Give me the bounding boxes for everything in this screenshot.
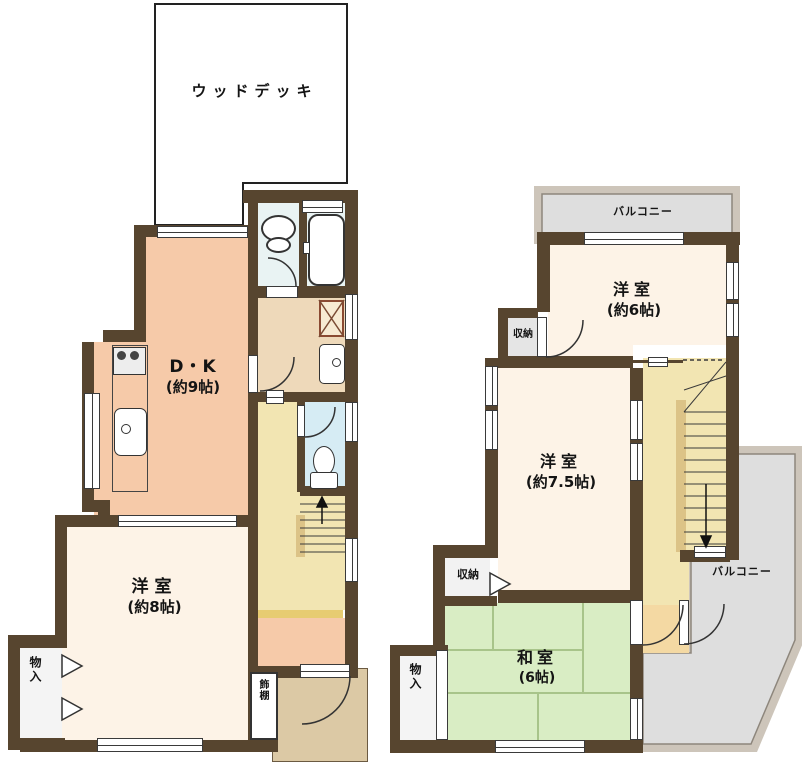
washitsu-door [630, 600, 643, 645]
wall [134, 225, 146, 332]
window [584, 232, 684, 245]
wall [537, 232, 550, 312]
wall [498, 590, 630, 603]
closet2f-label: 物入 [407, 663, 424, 691]
room-name: D・K [118, 356, 268, 378]
storage-lower-label: 収納 [444, 568, 492, 582]
vanity-faucet [332, 358, 341, 367]
tatami-line [537, 694, 539, 740]
window [630, 698, 643, 740]
bath-door [266, 286, 298, 298]
entrance-hall-floor [253, 618, 345, 668]
bedroom8-label: 洋室 (約8帖) [72, 576, 237, 618]
front-door [300, 664, 350, 678]
wall [390, 645, 400, 752]
bedroom6-label: 洋室 (約6帖) [558, 280, 710, 320]
room-size: (約9帖) [118, 378, 268, 398]
window [345, 538, 358, 582]
room-name: 和室 [466, 648, 608, 669]
stair-exit-window [694, 546, 726, 558]
room-size: (6帖) [466, 669, 608, 687]
tatami-line [492, 603, 494, 650]
wood-deck-label: ウッドデッキ [172, 82, 337, 102]
wall [8, 635, 20, 750]
closet2f-door [436, 650, 448, 740]
toilet-door [297, 405, 305, 437]
bedroom75-label: 洋室 (約7.5帖) [482, 452, 640, 492]
wall [433, 596, 445, 650]
washing-machine-pan [319, 300, 344, 337]
bathtub [308, 214, 345, 286]
kitchen-door [84, 393, 100, 489]
room-size: (約8帖) [72, 598, 237, 618]
window [630, 400, 643, 440]
bathtub-knob [303, 242, 310, 254]
wall [350, 666, 358, 678]
window [485, 410, 498, 450]
wall [55, 515, 67, 648]
stairs2-rail [676, 400, 686, 552]
window [157, 226, 248, 238]
storage-upper-label: 収納 [503, 328, 543, 341]
washitsu-label: 和室 (6帖) [466, 648, 608, 687]
window [97, 738, 203, 752]
hall1-floor-b [300, 557, 345, 610]
room-size: (約7.5帖) [482, 473, 640, 493]
closet1f-label: 物入 [27, 656, 44, 684]
room-size: (約6帖) [558, 301, 710, 321]
sliding-partition [118, 515, 237, 527]
window [726, 262, 739, 300]
window [726, 303, 739, 337]
wall [103, 330, 146, 342]
balcony-door [679, 600, 689, 645]
porch-floor [272, 668, 368, 762]
balcony-top-label: バルコニー [588, 205, 698, 219]
room-name: 洋室 [558, 280, 710, 301]
window [345, 402, 358, 442]
floorplan: ウッドデッキ D・K (約9帖) 洋室 (約8帖) 物入 飾棚 バルコニー 洋室… [0, 0, 802, 768]
toilet-tank [310, 472, 338, 489]
room-name: 洋室 [482, 452, 640, 473]
balcony-side-label: バルコニー [692, 565, 792, 579]
stairs1-rail [296, 515, 305, 557]
dk-room-label: D・K (約9帖) [118, 356, 268, 398]
opening [266, 390, 284, 404]
window [302, 200, 343, 213]
window [345, 294, 358, 340]
entrance-step [253, 610, 343, 618]
room-name: 洋室 [72, 576, 237, 598]
stairs1-floor [300, 496, 345, 557]
window [485, 366, 498, 406]
window [495, 740, 585, 753]
shelf-label: 飾棚 [255, 679, 270, 701]
opening [648, 357, 668, 367]
wall [498, 356, 633, 368]
bath-fixture [266, 237, 291, 253]
bedroom8-floor [62, 527, 248, 740]
